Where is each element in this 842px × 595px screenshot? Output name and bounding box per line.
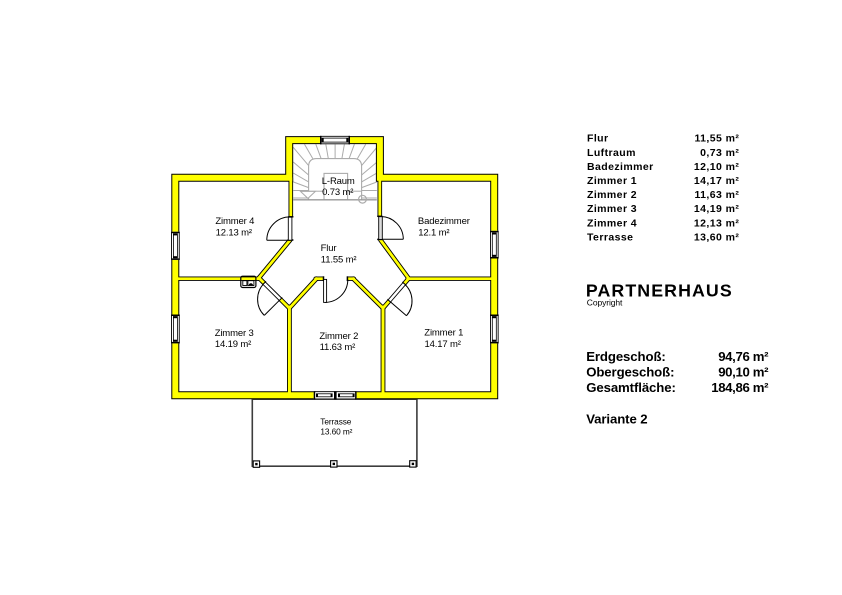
svg-text:Zimmer 2: Zimmer 2 <box>319 331 358 342</box>
svg-text:90,10 m²: 90,10 m² <box>718 365 769 380</box>
svg-text:12.1 m²: 12.1 m² <box>418 227 449 238</box>
svg-text:184,86 m²: 184,86 m² <box>711 380 769 395</box>
svg-text:Variante 2: Variante 2 <box>586 412 647 427</box>
svg-text:Badezimmer: Badezimmer <box>418 216 470 227</box>
svg-text:Badezimmer: Badezimmer <box>587 161 654 173</box>
svg-text:Terrasse: Terrasse <box>320 417 351 427</box>
svg-text:Zimmer 4: Zimmer 4 <box>587 217 637 229</box>
svg-text:Erdgeschoß:: Erdgeschoß: <box>586 349 666 364</box>
svg-text:Gesamtfläche:: Gesamtfläche: <box>586 380 676 395</box>
svg-text:11.63 m²: 11.63 m² <box>320 342 356 353</box>
svg-text:11,55 m²: 11,55 m² <box>694 133 739 145</box>
svg-text:0.73 m²: 0.73 m² <box>322 187 353 198</box>
svg-text:Terrasse: Terrasse <box>587 231 633 243</box>
svg-text:14.19 m²: 14.19 m² <box>215 339 251 350</box>
svg-text:13.60 m²: 13.60 m² <box>320 426 352 436</box>
svg-text:Copyright: Copyright <box>587 298 623 308</box>
svg-text:0,73 m²: 0,73 m² <box>700 147 739 159</box>
svg-text:L-Raum: L-Raum <box>322 176 355 187</box>
svg-text:14,19 m²: 14,19 m² <box>694 203 739 215</box>
svg-text:Obergeschoß:: Obergeschoß: <box>586 365 674 380</box>
svg-text:14,17 m²: 14,17 m² <box>694 175 739 187</box>
svg-text:14.17 m²: 14.17 m² <box>425 339 461 350</box>
svg-text:94,76 m²: 94,76 m² <box>718 349 769 364</box>
svg-text:Flur: Flur <box>321 243 337 254</box>
svg-text:11.55 m²: 11.55 m² <box>321 254 357 265</box>
svg-text:Zimmer 3: Zimmer 3 <box>215 328 254 339</box>
svg-text:12,13 m²: 12,13 m² <box>694 217 739 229</box>
svg-text:Zimmer 4: Zimmer 4 <box>215 216 254 227</box>
svg-text:Zimmer 1: Zimmer 1 <box>587 175 637 187</box>
svg-text:Zimmer 3: Zimmer 3 <box>587 203 637 215</box>
svg-text:Zimmer 1: Zimmer 1 <box>424 328 463 339</box>
svg-text:12.13 m²: 12.13 m² <box>216 228 252 239</box>
svg-text:12,10 m²: 12,10 m² <box>694 161 739 173</box>
svg-text:Flur: Flur <box>587 133 609 145</box>
svg-text:Zimmer 2: Zimmer 2 <box>587 189 637 201</box>
svg-text:11,63 m²: 11,63 m² <box>694 189 739 201</box>
svg-text:Luftraum: Luftraum <box>587 147 636 159</box>
svg-text:13,60 m²: 13,60 m² <box>694 231 739 243</box>
